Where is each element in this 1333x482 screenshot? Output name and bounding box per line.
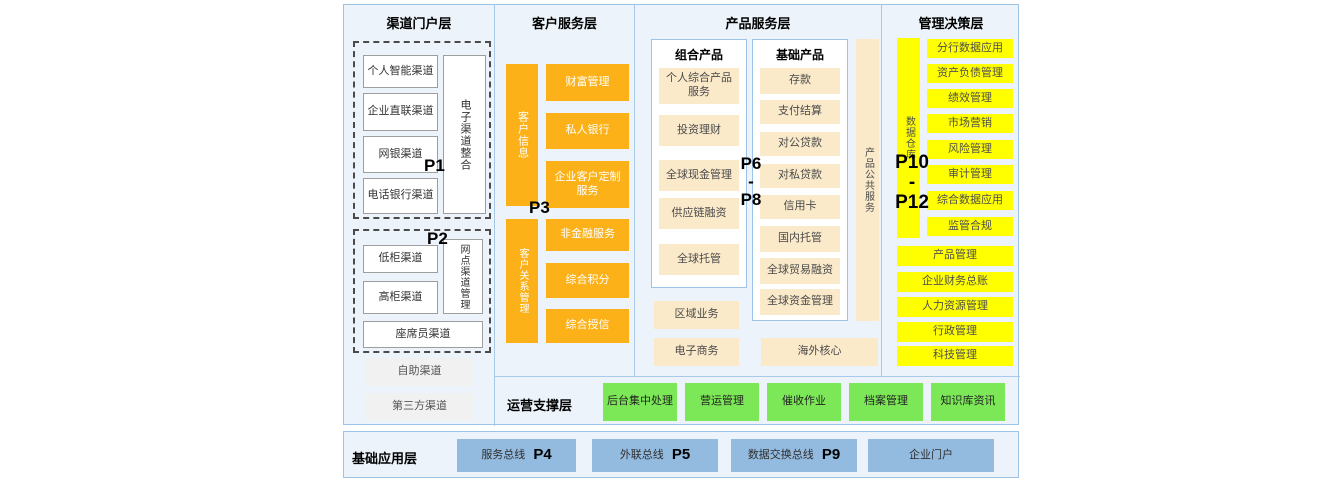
management-wide-box: 产品管理 (897, 246, 1013, 266)
layer-product-service: 产品服务层 组合产品 个人综合产品服务 投资理财 全球现金管理 供应链融资 全球… (635, 5, 882, 376)
branch-channel-mgmt-bar: 网点渠道管理 (443, 239, 483, 314)
p-range-sep: - (748, 172, 754, 191)
basic-product-title: 基础产品 (753, 46, 847, 63)
product-box: 全球托管 (659, 244, 739, 275)
branch-channel-group: 低柜渠道 高柜渠道 网点渠道管理 座席员渠道 (353, 229, 491, 353)
p4-label: P4 (533, 446, 551, 465)
management-wide-box: 企业财务总账 (897, 272, 1013, 292)
layer-customer-service: 客户服务层 客户信息 财富管理 私人银行 企业客户定制服务 P3 客户关系管理 … (495, 5, 635, 376)
operations-box: 营运管理 (685, 383, 759, 421)
p10-p12-label: P10 - P12 (886, 153, 938, 213)
management-app-box: 资产负债管理 (927, 64, 1013, 83)
operations-box: 催收作业 (767, 383, 841, 421)
overseas-core-box: 海外核心 (761, 338, 878, 366)
p9-label: P9 (822, 446, 840, 465)
customer-relation-bar: 客户关系管理 (506, 219, 538, 343)
management-app-box: 监管合规 (927, 217, 1013, 236)
management-app-box: 风险管理 (927, 140, 1013, 159)
operations-box: 后台集中处理 (603, 383, 677, 421)
p5-label: P5 (672, 446, 690, 465)
bus-box-data-exchange: 数据交换总线 P9 (731, 439, 857, 472)
product-box: 对公贷款 (760, 132, 840, 156)
p2-label: P2 (427, 230, 448, 248)
customer-service-title: 客户服务层 (495, 13, 634, 32)
channel-box: 个人智能渠道 (363, 55, 438, 88)
region-business-box: 区域业务 (654, 301, 739, 329)
third-party-channel-box: 第三方渠道 (366, 393, 473, 421)
operations-box: 知识库资讯 (931, 383, 1005, 421)
product-box: 全球现金管理 (659, 160, 739, 191)
management-app-box: 综合数据应用 (927, 191, 1013, 210)
channel-box: 电话银行渠道 (363, 178, 438, 214)
combo-product-panel: 组合产品 个人综合产品服务 投资理财 全球现金管理 供应链融资 全球托管 (651, 39, 747, 288)
service-box: 综合积分 (546, 263, 629, 298)
channel-box: 高柜渠道 (363, 281, 438, 314)
e-commerce-box: 电子商务 (654, 338, 739, 366)
agent-channel-box: 座席员渠道 (363, 321, 483, 348)
product-box: 全球资金管理 (760, 289, 840, 315)
management-wide-box: 行政管理 (897, 322, 1013, 342)
channel-box: 低柜渠道 (363, 245, 438, 273)
product-box: 供应链融资 (659, 198, 739, 229)
layer-management-decision: 管理决策层 数据仓库 P10 - P12 分行数据应用 资产负债管理 绩效管理 … (882, 5, 1020, 376)
e-channel-group: 个人智能渠道 企业直联渠道 网银渠道 电话银行渠道 电子渠道整合 (353, 41, 491, 219)
customer-info-bar: 客户信息 (506, 64, 538, 206)
operations-box: 档案管理 (849, 383, 923, 421)
layer-operations-support: 运营支撑层 后台集中处理 营运管理 催收作业 档案管理 知识库资讯 (495, 376, 1020, 426)
p-range-sep: - (909, 172, 915, 193)
product-box: 全球贸易融资 (760, 258, 840, 284)
product-box: 国内托管 (760, 226, 840, 252)
management-app-box: 分行数据应用 (927, 39, 1013, 58)
product-box: 投资理财 (659, 115, 739, 146)
p1-label: P1 (424, 157, 445, 175)
bus-label: 服务总线 (481, 449, 525, 463)
service-box: 财富管理 (546, 64, 629, 101)
p-range-bottom: P8 (741, 190, 762, 209)
bus-box-service: 服务总线 P4 (457, 439, 576, 472)
product-box: 个人综合产品服务 (659, 68, 739, 104)
product-box: 存款 (760, 68, 840, 94)
operations-support-title: 运营支撑层 (507, 395, 572, 414)
management-wide-box: 科技管理 (897, 346, 1013, 366)
architecture-diagram: 渠道门户层 个人智能渠道 企业直联渠道 网银渠道 电话银行渠道 电子渠道整合 P… (343, 4, 1019, 425)
service-box: 私人银行 (546, 113, 629, 149)
management-app-box: 绩效管理 (927, 89, 1013, 108)
layer-foundation-application: 基础应用层 服务总线 P4 外联总线 P5 数据交换总线 P9 企业门户 (343, 431, 1019, 478)
management-decision-title: 管理决策层 (882, 13, 1020, 32)
bus-box-external: 外联总线 P5 (592, 439, 718, 472)
management-wide-box: 人力资源管理 (897, 297, 1013, 317)
bus-label: 企业门户 (909, 449, 953, 463)
self-service-channel-box: 自助渠道 (366, 358, 473, 386)
combo-product-title: 组合产品 (652, 46, 746, 63)
p-range-top: P10 (895, 152, 929, 173)
product-box: 支付结算 (760, 100, 840, 124)
service-box: 综合授信 (546, 309, 629, 343)
e-channel-integration-bar: 电子渠道整合 (443, 55, 486, 214)
enterprise-portal-box: 企业门户 (868, 439, 994, 472)
product-box: 对私贷款 (760, 164, 840, 188)
channel-portal-title: 渠道门户层 (344, 13, 494, 32)
p-range-bottom: P12 (895, 192, 929, 213)
management-app-box: 市场营销 (927, 114, 1013, 133)
p6-p8-label: P6 - P8 (735, 155, 767, 209)
service-box: 非金融服务 (546, 219, 629, 251)
product-box: 信用卡 (760, 195, 840, 219)
management-app-box: 审计管理 (927, 165, 1013, 184)
p-range-top: P6 (741, 154, 762, 173)
product-service-title: 产品服务层 (635, 13, 881, 32)
product-public-service-bar: 产品公共服务 (856, 39, 879, 321)
bus-label: 外联总线 (620, 449, 664, 463)
service-box: 企业客户定制服务 (546, 161, 629, 208)
bus-label: 数据交换总线 (748, 449, 814, 463)
layer-channel-portal: 渠道门户层 个人智能渠道 企业直联渠道 网银渠道 电话银行渠道 电子渠道整合 P… (344, 5, 495, 426)
channel-box: 企业直联渠道 (363, 93, 438, 131)
p3-label: P3 (529, 199, 550, 217)
foundation-application-title: 基础应用层 (352, 448, 417, 467)
